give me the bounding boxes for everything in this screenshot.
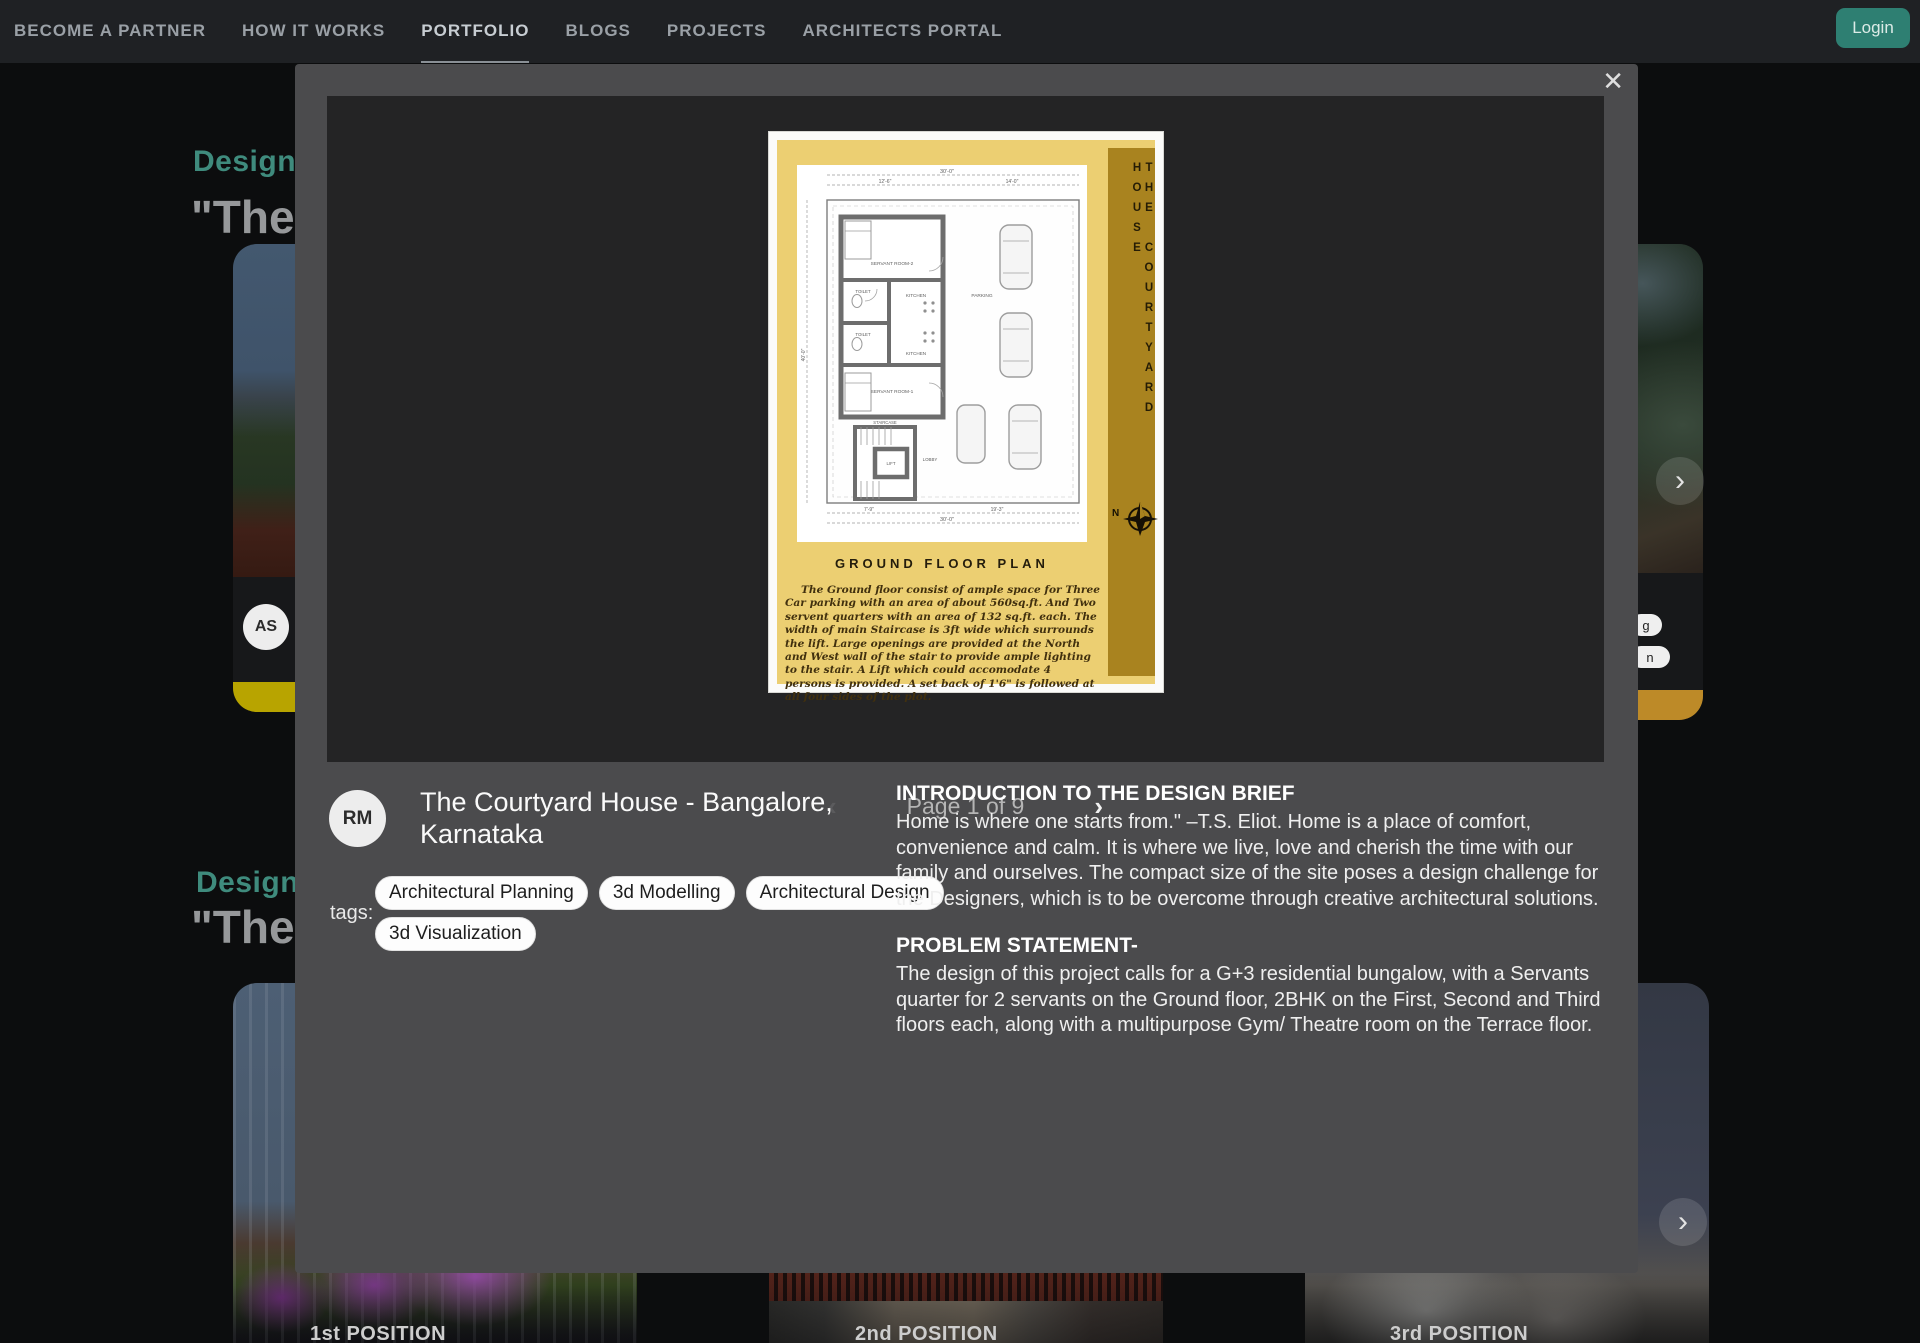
tag-pill: 3d Visualization — [375, 917, 536, 951]
tags-label: tags: — [330, 902, 373, 925]
svg-text:TOILET: TOILET — [855, 332, 871, 337]
svg-text:12'-6": 12'-6" — [879, 179, 892, 185]
tags-row-1: Architectural Planning 3d Modelling Arch… — [375, 876, 944, 910]
position-label: 2nd POSITION — [855, 1323, 998, 1343]
login-button[interactable]: Login — [1836, 8, 1910, 48]
svg-text:7'-9": 7'-9" — [864, 507, 874, 513]
project-modal: ✕ 30'-0" 12'-6" 14'-0" 40'-0" — [295, 64, 1638, 1273]
nav-item-projects[interactable]: PROJECTS — [667, 0, 767, 63]
position-label: 1st POSITION — [310, 1323, 446, 1343]
svg-text:LOBBY: LOBBY — [923, 457, 938, 462]
svg-text:19'-3": 19'-3" — [991, 507, 1004, 513]
page: Designs "The AS g n › Designs "The 1st P… — [0, 0, 1920, 1343]
svg-text:STAIRCASE: STAIRCASE — [873, 420, 897, 425]
svg-text:KITCHEN: KITCHEN — [906, 351, 926, 356]
avatar: AS — [243, 604, 289, 650]
section-title-fragment: "The — [191, 190, 295, 244]
tag-pill: Architectural Planning — [375, 876, 588, 910]
intro-heading: INTRODUCTION TO THE DESIGN BRIEF — [896, 782, 1614, 806]
design-brief: INTRODUCTION TO THE DESIGN BRIEF Home is… — [896, 782, 1614, 1039]
position-label: 3rd POSITION — [1390, 1323, 1528, 1343]
floor-plan-drawing: 30'-0" 12'-6" 14'-0" 40'-0" 7'-9" 19'-3"… — [797, 165, 1087, 542]
carousel-next-button[interactable]: › — [1656, 457, 1704, 505]
svg-text:40'-0": 40'-0" — [801, 348, 807, 361]
chevron-right-icon: › — [1678, 1205, 1688, 1239]
nav-item-how-it-works[interactable]: HOW IT WORKS — [242, 0, 385, 63]
svg-text:TOILET: TOILET — [855, 289, 871, 294]
plan-vertical-title: THE COURTYARD HOUSE — [1108, 162, 1155, 492]
svg-text:SERVANT ROOM-1: SERVANT ROOM-1 — [871, 389, 914, 395]
svg-text:14'-0": 14'-0" — [1006, 179, 1019, 185]
project-avatar: RM — [329, 790, 386, 847]
project-title: The Courtyard House - Bangalore, Karnata… — [420, 786, 960, 850]
svg-text:30'-0": 30'-0" — [940, 517, 954, 523]
plan-drawing-sheet: 30'-0" 12'-6" 14'-0" 40'-0" 7'-9" 19'-3"… — [797, 165, 1087, 542]
plan-description: The Ground floor consist of ample space … — [785, 584, 1101, 705]
chevron-right-icon: › — [1675, 464, 1685, 498]
svg-text:PARKING: PARKING — [971, 293, 993, 299]
problem-heading: PROBLEM STATEMENT- — [896, 934, 1614, 958]
plan-caption: GROUND FLOOR PLAN — [797, 556, 1087, 571]
close-icon[interactable]: ✕ — [1602, 68, 1624, 94]
svg-text:KITCHEN: KITCHEN — [906, 293, 926, 298]
plan-title-strip: THE COURTYARD HOUSE N — [1108, 148, 1155, 676]
tag-pill: 3d Modelling — [599, 876, 735, 910]
section-title-fragment: "The — [191, 900, 295, 954]
top-nav: BECOME A PARTNER HOW IT WORKS PORTFOLIO … — [0, 0, 1920, 63]
svg-text:SERVANT ROOM-2: SERVANT ROOM-2 — [871, 261, 914, 267]
floor-plan-page: 30'-0" 12'-6" 14'-0" 40'-0" 7'-9" 19'-3"… — [769, 132, 1163, 692]
intro-text: Home is where one starts from." –T.S. El… — [896, 810, 1614, 912]
nav-item-portfolio[interactable]: PORTFOLIO — [421, 0, 529, 63]
carousel-next-button[interactable]: › — [1659, 1198, 1707, 1246]
tags-row-2: 3d Visualization — [375, 917, 536, 951]
svg-text:30'-0": 30'-0" — [940, 169, 954, 175]
north-compass-icon: N — [1112, 500, 1154, 540]
nav-item-become-a-partner[interactable]: BECOME A PARTNER — [14, 0, 206, 63]
problem-text: The design of this project calls for a G… — [896, 962, 1614, 1039]
plan-viewer: 30'-0" 12'-6" 14'-0" 40'-0" 7'-9" 19'-3"… — [327, 96, 1604, 762]
nav-item-blogs[interactable]: BLOGS — [565, 0, 630, 63]
nav-item-architects-portal[interactable]: ARCHITECTS PORTAL — [803, 0, 1003, 63]
svg-text:LIFT: LIFT — [886, 461, 895, 466]
